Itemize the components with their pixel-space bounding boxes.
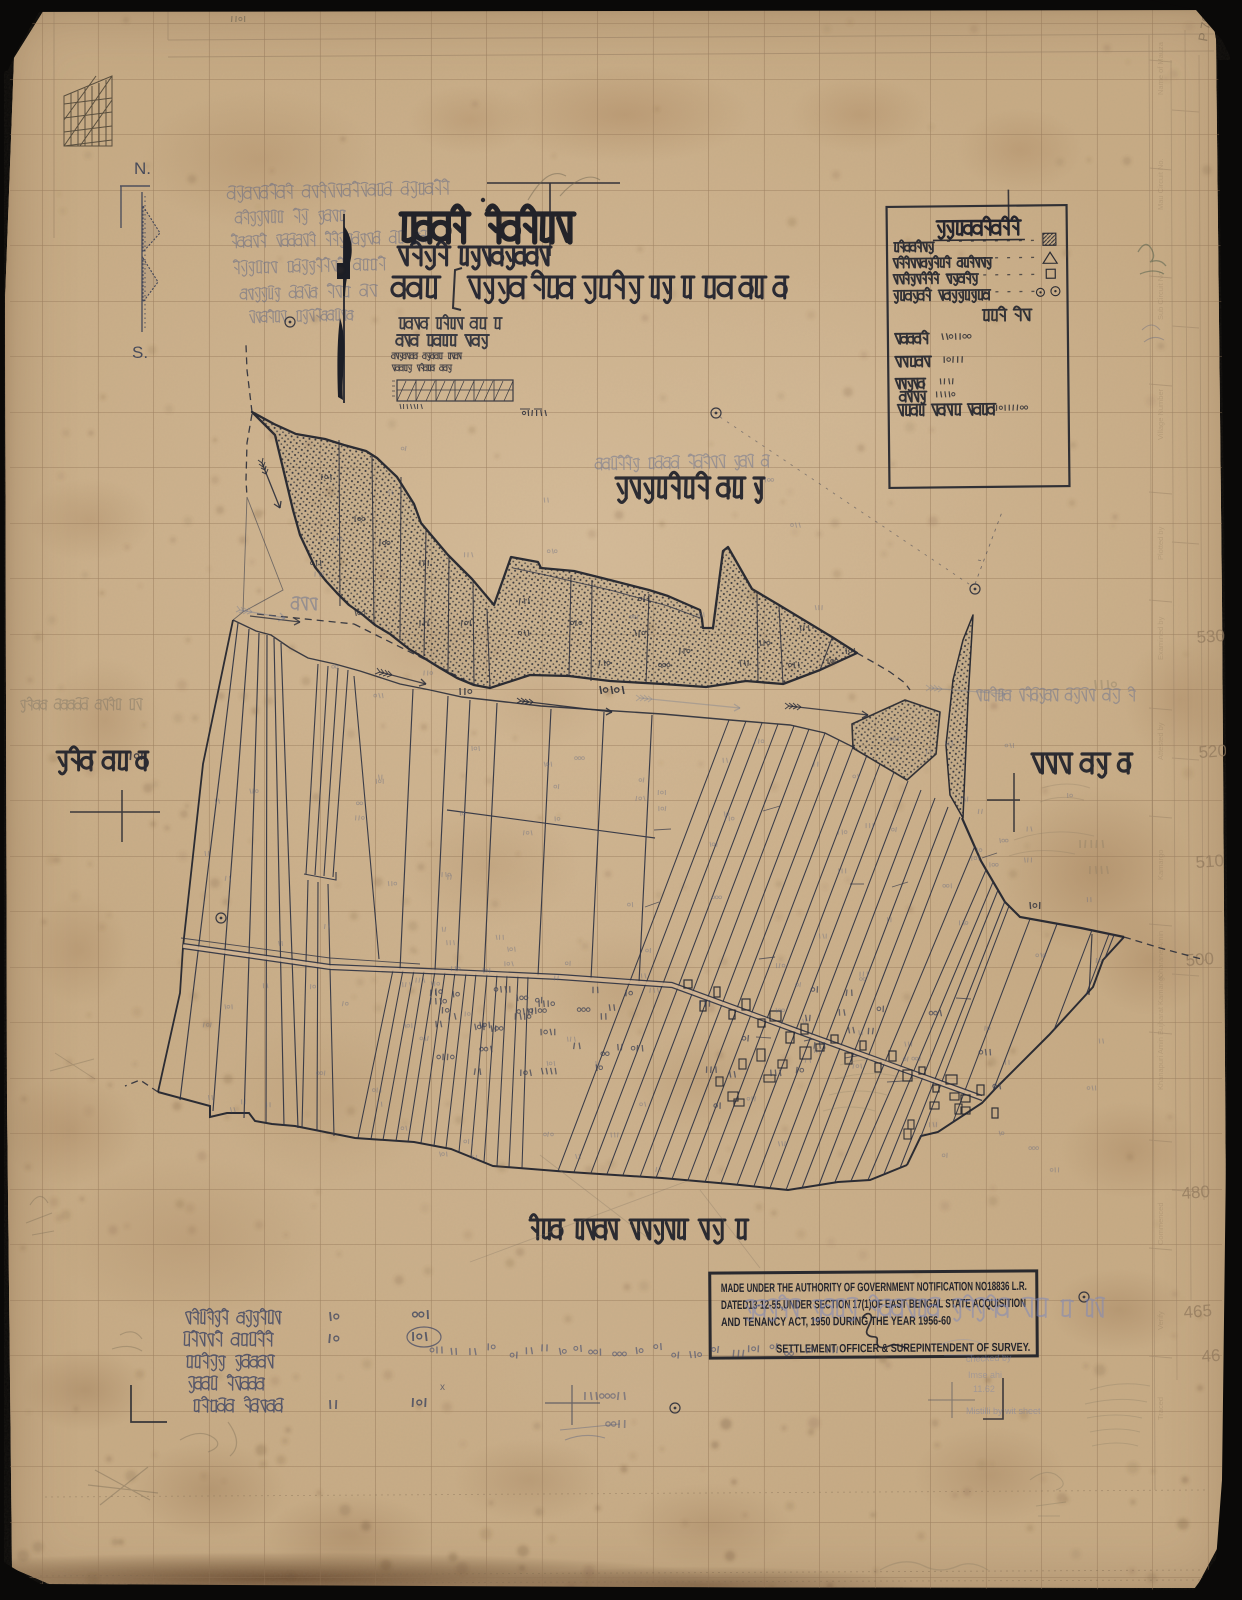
svg-text:480: 480 bbox=[1181, 1182, 1211, 1203]
svg-text:Mistilli by wit sheet: Mistilli by wit sheet bbox=[966, 1406, 1041, 1416]
svg-text:46: 46 bbox=[1201, 1346, 1221, 1366]
svg-text:S.: S. bbox=[132, 343, 148, 362]
svg-text:Name of Mauza: Name of Mauza bbox=[1156, 41, 1165, 95]
svg-text:K harane Amin: K harane Amin bbox=[1156, 931, 1165, 980]
svg-text:Examined by: Examined by bbox=[1156, 616, 1165, 660]
svg-text:Sub Circuit No.: Sub Circuit No. bbox=[1156, 270, 1165, 320]
svg-text:520: 520 bbox=[1198, 741, 1228, 762]
svg-text:465: 465 bbox=[1183, 1301, 1213, 1322]
svg-text:500: 500 bbox=[1185, 949, 1215, 970]
svg-text:AND TENANCY ACT, 1950 DURING T: AND TENANCY ACT, 1950 DURING THE YEAR 19… bbox=[721, 1313, 951, 1329]
svg-text:11.62: 11.62 bbox=[973, 1384, 995, 1394]
svg-text:Khanapuri Amin Bujharat Kamang: Khanapuri Amin Bujharat Kamango bbox=[1156, 973, 1165, 1090]
svg-text:Imse ahi: Imse ahi bbox=[968, 1370, 1002, 1380]
svg-text:checked by: checked by bbox=[966, 1352, 1012, 1364]
svg-text:Village Number: Village Number bbox=[1156, 388, 1165, 440]
svg-text:Attested by: Attested by bbox=[1156, 722, 1165, 760]
svg-text:x: x bbox=[440, 1382, 445, 1393]
svg-text:Kamargo: Kamargo bbox=[1156, 850, 1165, 880]
svg-text:Mau Circuit No.: Mau Circuit No. bbox=[1156, 158, 1165, 210]
svg-text:MADE UNDER THE AUTHORITY OF GO: MADE UNDER THE AUTHORITY OF GOVERNMENT N… bbox=[721, 1279, 1027, 1295]
svg-text:Traced: Traced bbox=[1156, 1397, 1165, 1420]
svg-text:510: 510 bbox=[1195, 851, 1225, 872]
svg-text:Plotted by: Plotted by bbox=[1156, 526, 1165, 560]
svg-text:530: 530 bbox=[1196, 626, 1226, 647]
svg-text:Verify: Verify bbox=[1156, 1311, 1165, 1330]
